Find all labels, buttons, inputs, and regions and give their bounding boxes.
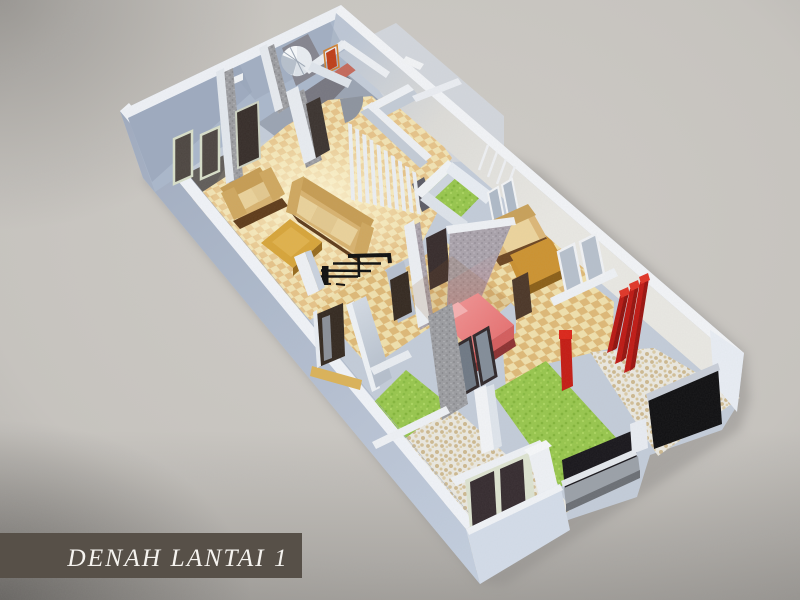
svg-text:DENAH LANTAI 1: DENAH LANTAI 1 (66, 543, 289, 572)
